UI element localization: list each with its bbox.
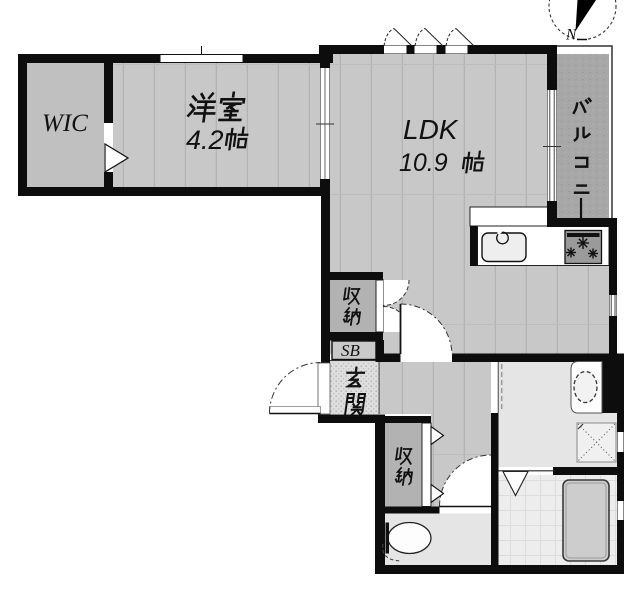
svg-text:LDK: LDK	[403, 114, 459, 145]
svg-text:10.9: 10.9	[399, 149, 448, 177]
svg-text:4.2: 4.2	[186, 125, 224, 155]
svg-text:SB: SB	[341, 341, 361, 360]
svg-text:N: N	[565, 27, 578, 44]
svg-text:WIC: WIC	[42, 110, 88, 137]
